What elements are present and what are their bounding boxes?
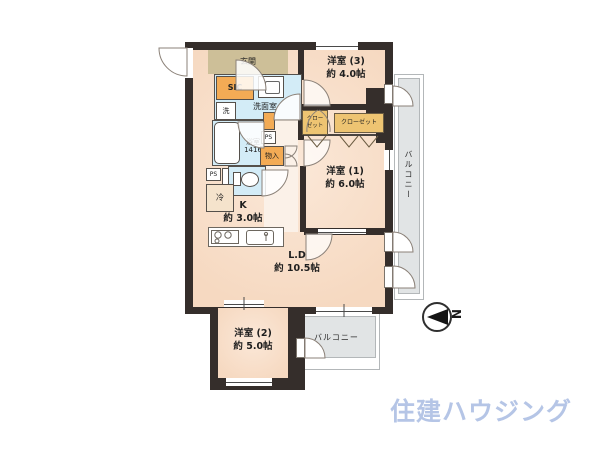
floorplan-canvas: バルコニー バルコニー 玄関 洗面室 SIC 洗 浴室 1416 PS <box>0 0 600 450</box>
closet-wide: クローゼット <box>334 113 384 133</box>
entrance-area: 玄関 <box>208 50 288 74</box>
window-room3-top <box>316 42 358 50</box>
balcony-bottom-label: バルコニー <box>314 332 359 343</box>
small-utility-box <box>263 112 275 130</box>
room2-area: 約 5.0帖 <box>213 341 293 354</box>
bath-name: 浴室 <box>246 138 260 146</box>
ps-box-2: PS <box>206 168 221 181</box>
kitchen-area: 約 3.0帖 <box>213 213 273 226</box>
washer-label: 洗 <box>223 107 230 115</box>
bathtub <box>214 122 240 164</box>
compass-north-label: N <box>449 309 463 323</box>
ld-name: L.D <box>257 250 337 263</box>
room2-label: 洋室 (2) 約 5.0帖 <box>213 328 293 354</box>
slider-room1-ld <box>318 229 366 234</box>
room3-area: 約 4.0帖 <box>306 69 386 82</box>
brand-logo: 住建ハウジング <box>390 392 590 428</box>
sic-box: SIC <box>216 76 254 100</box>
washer-box: 洗 <box>216 102 236 120</box>
closet-wide-label: クローゼット <box>341 119 377 126</box>
room1-area: 約 6.0帖 <box>305 179 385 192</box>
room3-name: 洋室 (3) <box>306 56 386 69</box>
door-leaf-ld-balcony <box>384 266 393 288</box>
room1-name: 洋室 (1) <box>305 166 385 179</box>
closet-small-l1: クロー <box>307 116 324 122</box>
ps1-label: PS <box>265 134 272 141</box>
window-room2-bottom <box>226 378 272 386</box>
compass-north-arrow-icon <box>427 309 448 325</box>
room2-name: 洋室 (2) <box>213 328 293 341</box>
ld-label: L.D 約 10.5帖 <box>257 250 337 276</box>
window-ld-balcony <box>316 307 372 314</box>
door-leaf-room2-balcony <box>296 338 305 358</box>
door-leaf-room3-balcony <box>384 84 393 104</box>
door-leaf-room1-balcony <box>384 232 393 252</box>
kitchen-name: K <box>213 200 273 213</box>
entrance-label: 玄関 <box>240 57 256 67</box>
toilet-bowl <box>241 172 259 187</box>
kitchen-label: K 約 3.0帖 <box>213 200 273 226</box>
balcony-right-label: バルコニー <box>403 150 414 200</box>
washbasin-icon <box>265 81 280 94</box>
closet-small: クロー ゼット <box>302 110 328 135</box>
stove-icon <box>211 230 239 244</box>
storage-box: 物入 <box>260 146 284 166</box>
washbasin <box>258 76 284 98</box>
toilet-tank <box>233 172 241 186</box>
sic-label: SIC <box>228 83 243 93</box>
entry-door-gap <box>185 48 193 78</box>
room3-label: 洋室 (3) 約 4.0帖 <box>306 56 386 82</box>
sink-icon <box>246 230 274 245</box>
room1-label: 洋室 (1) 約 6.0帖 <box>305 166 385 192</box>
window-room2-ld <box>224 300 264 307</box>
ld-area: 約 10.5帖 <box>257 263 337 276</box>
storage-label: 物入 <box>265 152 279 160</box>
window-room1-right <box>384 150 393 170</box>
ps2-label: PS <box>210 171 217 178</box>
closet-small-l2: ゼット <box>307 123 324 129</box>
ps-box-1: PS <box>261 131 276 144</box>
